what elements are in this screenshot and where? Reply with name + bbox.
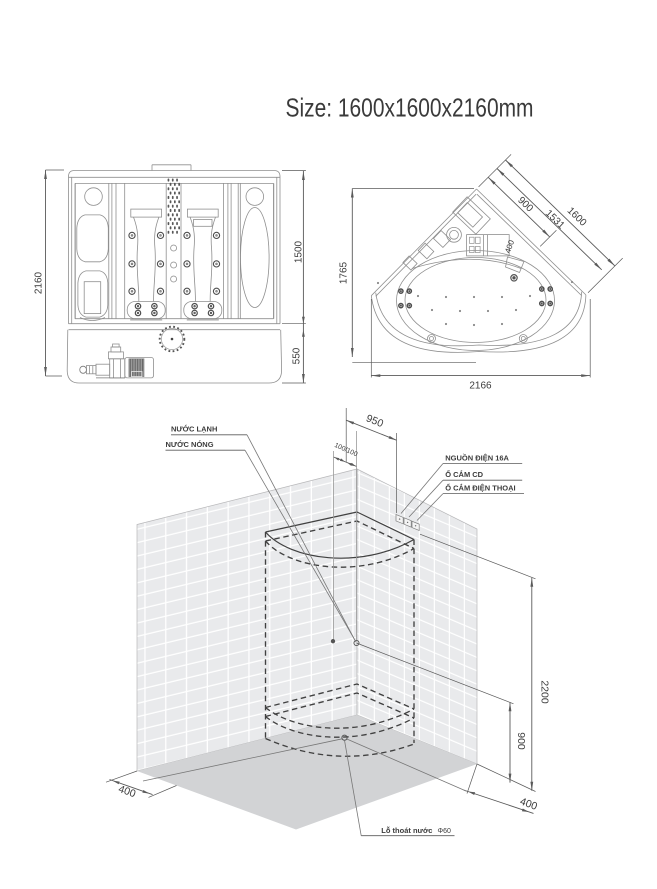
svg-text:550: 550 [292,347,303,364]
svg-text:NƯỚC NÓNG: NƯỚC NÓNG [166,440,214,449]
svg-text:NƯỚC LẠNH: NƯỚC LẠNH [171,425,217,434]
svg-text:1500: 1500 [294,240,305,263]
svg-text:1765: 1765 [339,261,350,284]
svg-text:Lỗ thoát nước: Lỗ thoát nước [381,826,432,835]
svg-text:NGUỒN ĐIỆN 16A: NGUỒN ĐIỆN 16A [445,452,509,462]
svg-text:2166: 2166 [469,381,492,392]
svg-text:900: 900 [515,732,527,750]
svg-text:Ổ CẮM ĐIỆN THOẠI: Ổ CẮM ĐIỆN THOẠI [445,483,515,492]
svg-text:Ổ CẮM CD: Ổ CẮM CD [445,470,483,479]
svg-text:Size: 1600x1600x2160mm: Size: 1600x1600x2160mm [286,93,534,123]
svg-text:2200: 2200 [539,680,551,704]
svg-text:Φ60: Φ60 [438,828,451,835]
svg-text:2160: 2160 [34,271,45,294]
